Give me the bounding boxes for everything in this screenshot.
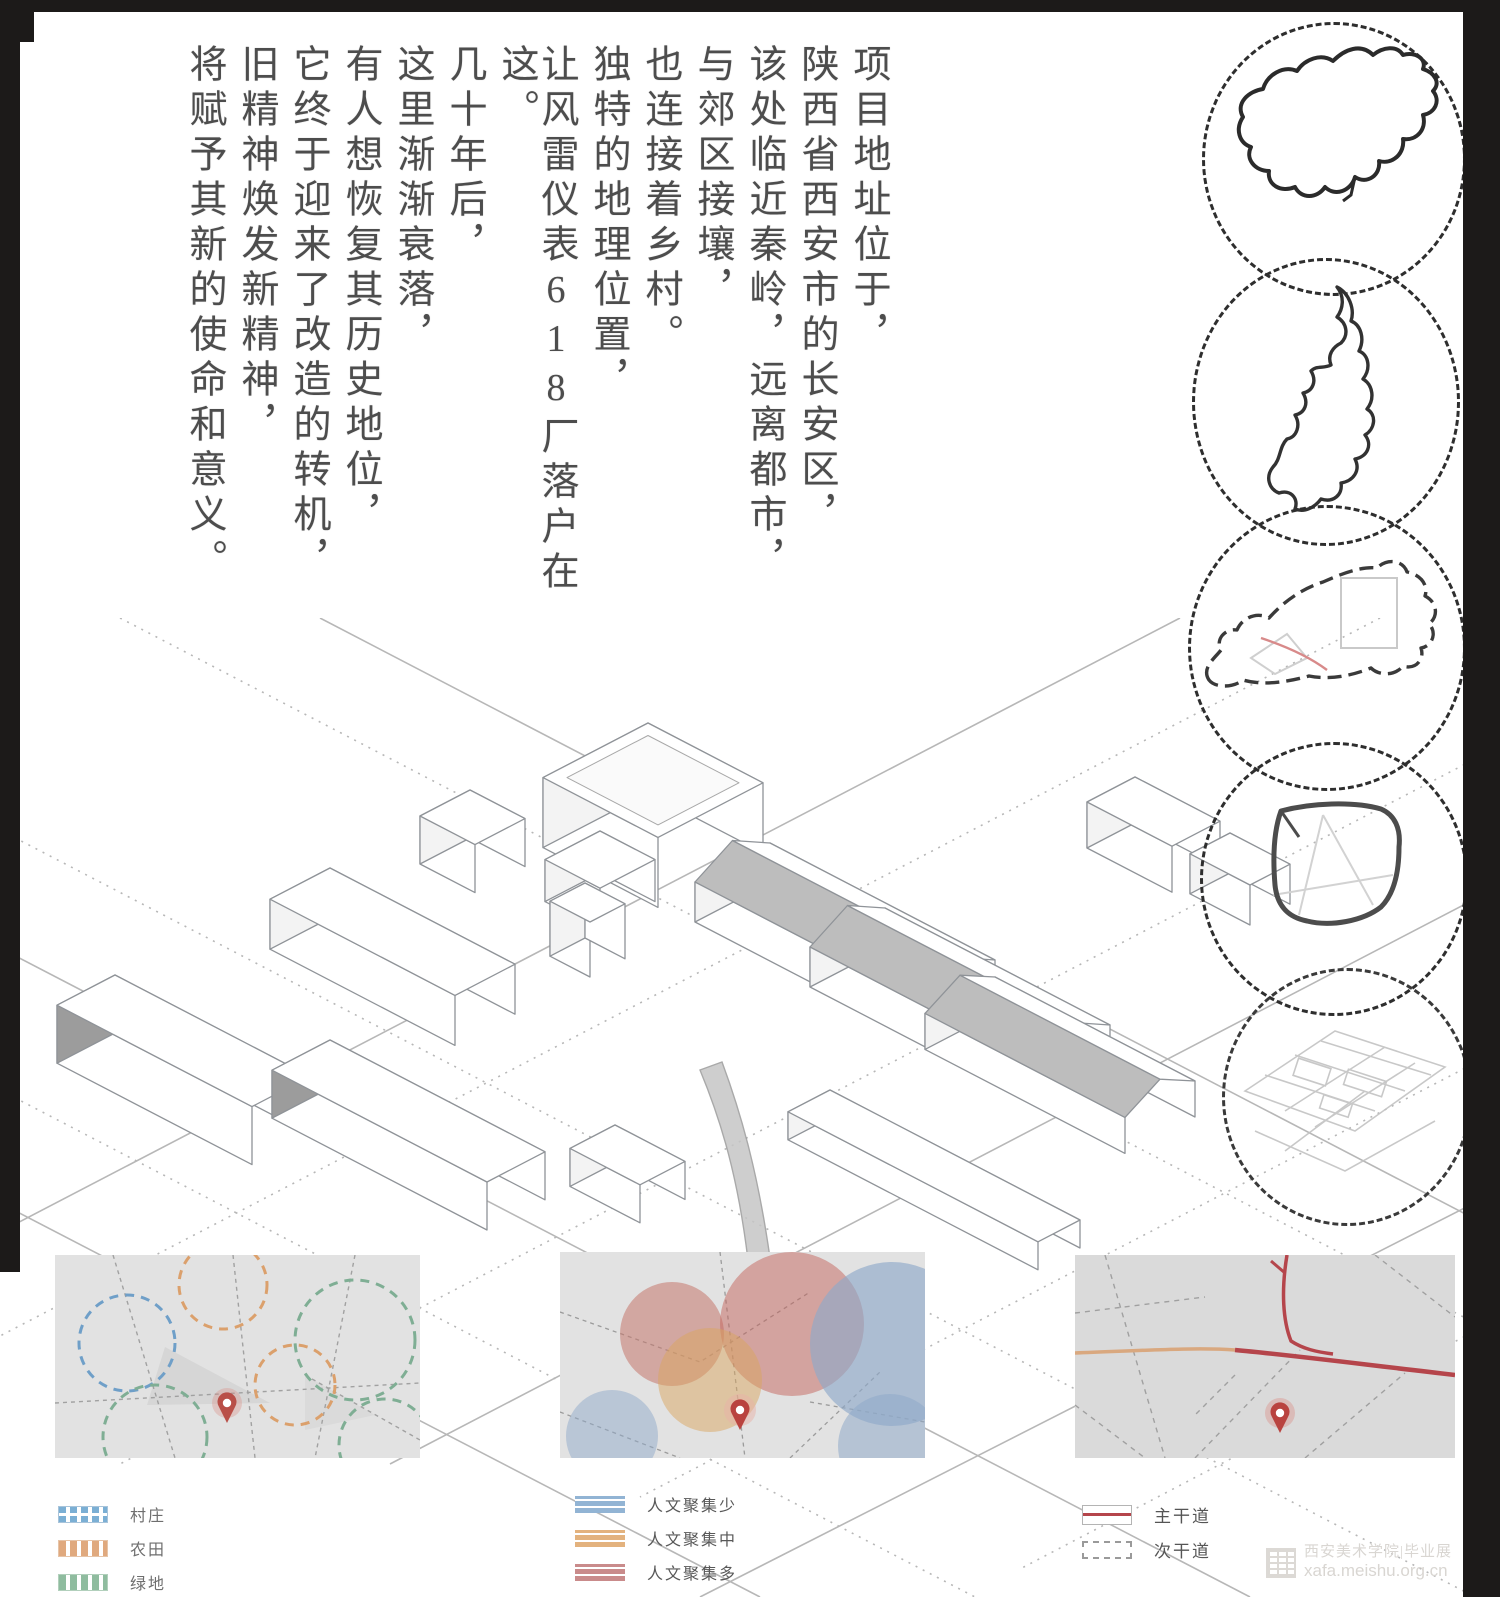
legend-label: 村庄 <box>130 1502 166 1526</box>
intro-column: 与郊区接壤， <box>692 44 732 654</box>
site-watermark: 西安美术学院|毕业展 xafa.meishu.org.cn <box>1266 1544 1452 1581</box>
legend-swatch-main-road <box>1082 1505 1132 1525</box>
intro-column: 这里渐渐衰落， <box>392 44 432 654</box>
legend-label: 农田 <box>130 1536 166 1560</box>
project-intro-vertical-text: 项目地址位于， 陕西省西安市的长安区， 该处临近秦岭，远离都市， 与郊区接壤， … <box>172 44 900 654</box>
legend-swatch-farmland <box>58 1540 108 1557</box>
legend-swatch-density-high <box>575 1564 625 1581</box>
scan-frame-corner <box>0 0 34 42</box>
scan-frame-right <box>1463 0 1500 1597</box>
watermark-text: 西安美术学院|毕业展 xafa.meishu.org.cn <box>1304 1544 1452 1581</box>
legend-swatch-density-low <box>575 1496 625 1513</box>
legend-swatch-village <box>58 1506 108 1523</box>
legend-item: 人文聚集多 <box>575 1560 737 1584</box>
legend-item: 人文聚集中 <box>575 1526 737 1550</box>
road-network-map <box>1075 1255 1455 1458</box>
intro-column: 它终于迎来了改造的转机， <box>288 44 328 654</box>
legend-item: 人文聚集少 <box>575 1492 737 1516</box>
legend-item: 绿地 <box>58 1570 166 1594</box>
landuse-legend: 村庄 农田 绿地 <box>58 1502 166 1594</box>
intro-column: 几十年后， <box>444 44 484 654</box>
map-circle-china <box>1202 22 1466 296</box>
intro-column: 陕西省西安市的长安区， <box>796 44 836 654</box>
intro-column: 旧精神焕发新精神， <box>236 44 276 654</box>
legend-label: 绿地 <box>130 1570 166 1594</box>
shaanxi-outline-path <box>1269 287 1374 510</box>
legend-label: 人文聚集中 <box>647 1526 737 1550</box>
legend-item: 农田 <box>58 1536 166 1560</box>
map-background <box>55 1255 420 1458</box>
intro-column: 项目地址位于， <box>848 44 888 654</box>
intro-column: 独特的地理位置， <box>588 44 628 654</box>
intro-column: 也连接着乡村。 <box>640 44 680 654</box>
scan-frame-left <box>0 0 20 1272</box>
crowd-density-map-svg <box>560 1252 925 1458</box>
legend-swatch-secondary-road <box>1082 1541 1132 1559</box>
density-legend: 人文聚集少 人文聚集中 人文聚集多 <box>575 1492 737 1584</box>
shaanxi-outline-map <box>1195 261 1451 537</box>
legend-item: 次干道 <box>1082 1537 1211 1562</box>
legend-label: 次干道 <box>1154 1537 1211 1562</box>
legend-label: 人文聚集多 <box>647 1560 737 1584</box>
china-outline-path <box>1239 48 1437 196</box>
road-legend: 主干道 次干道 <box>1082 1502 1211 1562</box>
legend-swatch-greenland <box>58 1574 108 1591</box>
legend-item: 主干道 <box>1082 1502 1211 1527</box>
china-island-stroke <box>1343 177 1355 201</box>
legend-item: 村庄 <box>58 1502 166 1526</box>
intro-column: 该处临近秦岭，远离都市， <box>744 44 784 654</box>
watermark-line1: 西安美术学院|毕业展 <box>1304 1544 1452 1561</box>
legend-label: 人文聚集少 <box>647 1492 737 1516</box>
legend-label: 主干道 <box>1154 1502 1211 1527</box>
road-network-map-svg <box>1075 1255 1455 1458</box>
legend-swatch-density-mid <box>575 1530 625 1547</box>
axon-building-face <box>788 1090 1080 1242</box>
curved-walkway <box>700 1062 770 1260</box>
intro-column: 将赋予其新的使命和意义。 <box>184 44 224 654</box>
watermark-line2: xafa.meishu.org.cn <box>1304 1561 1452 1581</box>
map-background <box>1075 1255 1455 1458</box>
scan-frame-top <box>0 0 1500 12</box>
map-circle-shaanxi <box>1192 258 1460 546</box>
china-outline-map <box>1205 25 1457 287</box>
intro-column: 让风雷仪表618厂落户在这。 <box>496 44 576 654</box>
crowd-density-map <box>560 1252 925 1458</box>
landuse-map-svg <box>55 1255 420 1458</box>
intro-column: 有人想恢复其历史地位， <box>340 44 380 654</box>
landuse-analysis-map <box>55 1255 420 1458</box>
academy-seal-icon <box>1266 1548 1296 1578</box>
